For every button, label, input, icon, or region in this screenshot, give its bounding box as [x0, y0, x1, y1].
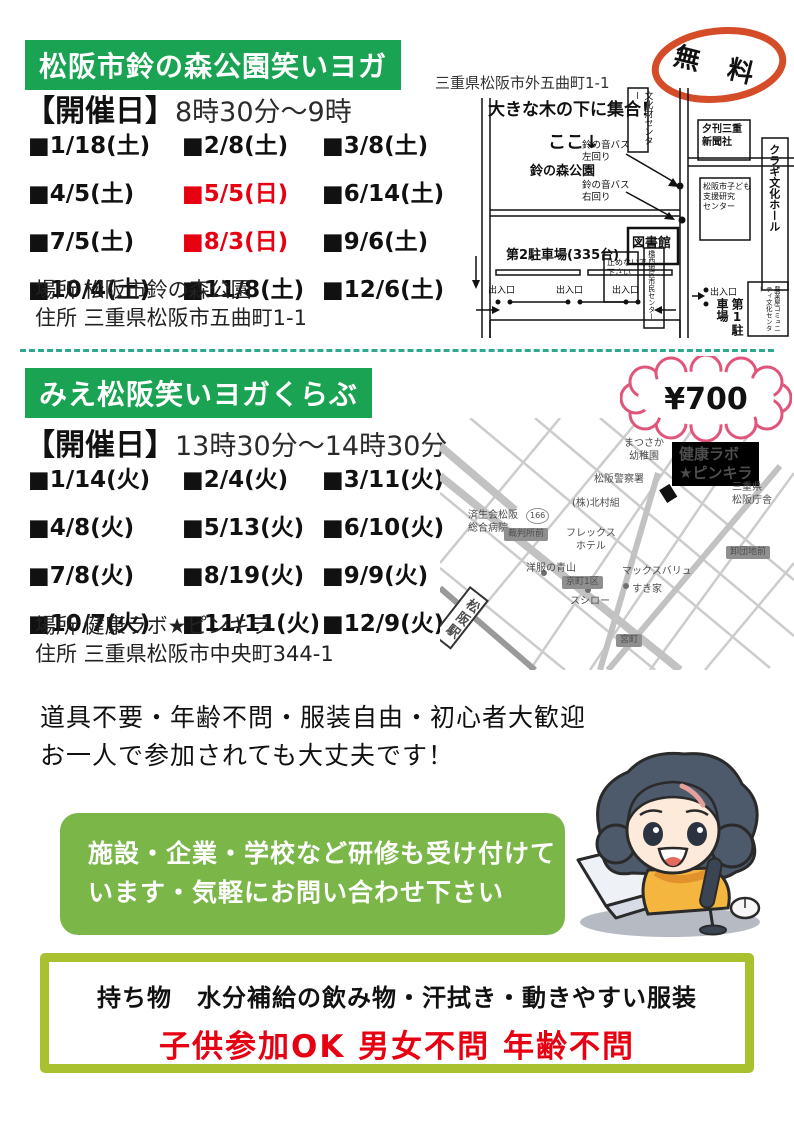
- map1-bus-right-label: 鈴の音バス 右回り: [582, 180, 630, 204]
- date-item: ■1/18(土): [28, 126, 182, 160]
- date-item: ■1/14(火): [28, 460, 182, 494]
- presenter-illustration: [560, 742, 780, 947]
- section2-place: 場所 健康ラボ★ピンキラ: [35, 610, 271, 640]
- training-box: 施設・企業・学校など研修も受け付けて います・気軽にお問い合わせ下さい: [60, 813, 565, 935]
- section-divider: [20, 349, 774, 352]
- map1-bunkazai-label: 文化財センター: [630, 91, 653, 149]
- training-line2: います・気軽にお問い合わせ下さい: [88, 874, 565, 913]
- belongings-text: 持ち物 水分補給の飲み物・汗拭き・動きやすい服装: [49, 978, 745, 1013]
- map1-exit-label: 出入口: [488, 286, 515, 297]
- map2-maxvalu-label: マックスバリュ: [622, 566, 692, 579]
- date-item: ■6/10(火): [322, 508, 444, 542]
- map2-busstop-oroshi: 卸団地前: [726, 546, 770, 559]
- flyer-page: 松阪市鈴の森公園笑いヨガ 【開催日】8時30分～9時 ■1/18(土) ■2/8…: [0, 0, 794, 1123]
- date-item: ■8/3(日): [182, 222, 322, 256]
- map1-exit-label: 出入口: [556, 286, 583, 297]
- section1-place: 場所 松阪市鈴の森公園: [35, 274, 252, 304]
- date-item: ■4/8(火): [28, 508, 182, 542]
- map1-kuragi-label: クラギ文化ホール: [767, 144, 781, 286]
- map1-exit-label: 出入口: [612, 286, 639, 297]
- date-item: ■2/8(土): [182, 126, 322, 160]
- price-badge: ¥700: [620, 356, 792, 442]
- map1-park-label: 鈴の森公園: [530, 164, 595, 180]
- map2-kitamura-label: (株)北村組: [572, 498, 620, 511]
- section2-schedule-label: 【開催日】: [25, 428, 175, 463]
- date-item: ■9/6(土): [322, 222, 444, 256]
- training-line1: 施設・企業・学校など研修も受け付けて: [88, 835, 565, 874]
- bottom-info-box: 持ち物 水分補給の飲み物・汗拭き・動きやすい服装 子供参加OK 男女不問 年齢不…: [40, 953, 754, 1073]
- map1-kyosei-label: 橋西地区市民センター: [647, 250, 656, 326]
- map2-aoyama-label: 洋服の青山: [526, 563, 576, 576]
- date-item: ■3/11(火): [322, 460, 444, 494]
- section2-title-text: みえ松阪笑いヨガくらぶ: [25, 368, 372, 418]
- map1-kodomo-label: 松阪市子ども 支援研究 センター: [703, 182, 751, 212]
- section2-schedule-time: 13時30分～14時30分: [175, 431, 447, 462]
- price-badge-text: ¥700: [664, 382, 748, 417]
- map2-busstop-kyomachi: 京町1区: [562, 576, 603, 589]
- date-item: ■4/5(土): [28, 174, 182, 208]
- map2-sushiro-label: スシロー: [570, 596, 610, 609]
- price-cloud-icon: ¥700: [620, 356, 792, 442]
- date-item: ■2/4(火): [182, 460, 322, 494]
- date-item: ■5/5(日): [182, 174, 322, 208]
- note-line2: お一人で参加されても大丈夫です！: [40, 736, 454, 772]
- section1-title: 松阪市鈴の森公園笑いヨガ: [25, 40, 401, 90]
- map2-prefoffice-label: 三重県 松阪庁舎: [732, 482, 772, 507]
- section2-address: 住所 三重県松阪市中央町344-1: [35, 638, 334, 668]
- section2-schedule: 【開催日】13時30分～14時30分: [25, 420, 447, 464]
- note-line1: 道具不要・年齢不問・服装自由・初心者大歓迎: [40, 698, 586, 734]
- map1-noparking-label: 止めないで 下さい: [607, 258, 647, 278]
- map1-bus-left-label: 鈴の音バス 左回り: [582, 140, 630, 164]
- map1-community-label: 農業屋コミュニティ文化センター: [756, 286, 780, 334]
- section1-schedule: 【開催日】8時30分～9時: [25, 86, 352, 130]
- date-item: ■9/9(火): [322, 556, 444, 590]
- section1-title-text: 松阪市鈴の森公園笑いヨガ: [25, 40, 401, 90]
- section2-title: みえ松阪笑いヨガくらぶ: [25, 368, 372, 418]
- map2-venue-label: 健康ラボ ★ピンキラ: [672, 442, 759, 486]
- woman-at-laptop-icon: [560, 742, 780, 947]
- date-item: ■7/5(土): [28, 222, 182, 256]
- map1-parking1-label: 第1駐車場: [714, 298, 744, 338]
- map2-sukiya-label: すき家: [632, 584, 662, 597]
- map1-parking2-label: 第2駐車場(335台): [506, 248, 619, 264]
- map-pinkira: まつさか 幼稚園 健康ラボ ★ピンキラ 松阪警察署 (株)北村組 三重県 松阪庁…: [440, 418, 794, 670]
- map-suzunomori: 三重県松阪市外五曲町1-1 大きな木の下に集合！ ここ↓ 鈴の森公園 文化財セン…: [430, 58, 794, 338]
- date-item: ■12/6(土): [322, 270, 444, 304]
- map2-hotel-label: フレックス ホテル: [566, 528, 616, 553]
- section1-schedule-label: 【開催日】: [25, 94, 175, 129]
- map2-police-label: 松阪警察署: [594, 474, 644, 487]
- section1-address: 住所 三重県松阪市五曲町1-1: [35, 302, 307, 332]
- date-item: ■7/8(火): [28, 556, 182, 590]
- date-item: ■3/8(土): [322, 126, 444, 160]
- date-item: ■12/9(火): [322, 604, 444, 638]
- section1-schedule-time: 8時30分～9時: [175, 97, 352, 128]
- map1-newspaper-label: 夕刊三重 新聞社: [702, 124, 742, 149]
- map2-busstop-miyamachi: 宮町: [616, 634, 642, 647]
- welcome-text: 子供参加OK 男女不問 年齢不問: [49, 1021, 745, 1066]
- date-item: ■8/19(火): [182, 556, 322, 590]
- map1-address: 三重県松阪市外五曲町1-1: [435, 74, 610, 93]
- date-item: ■5/13(火): [182, 508, 322, 542]
- map2-busstop-courthouse: 裁判所前: [504, 528, 548, 541]
- date-item: ■6/14(土): [322, 174, 444, 208]
